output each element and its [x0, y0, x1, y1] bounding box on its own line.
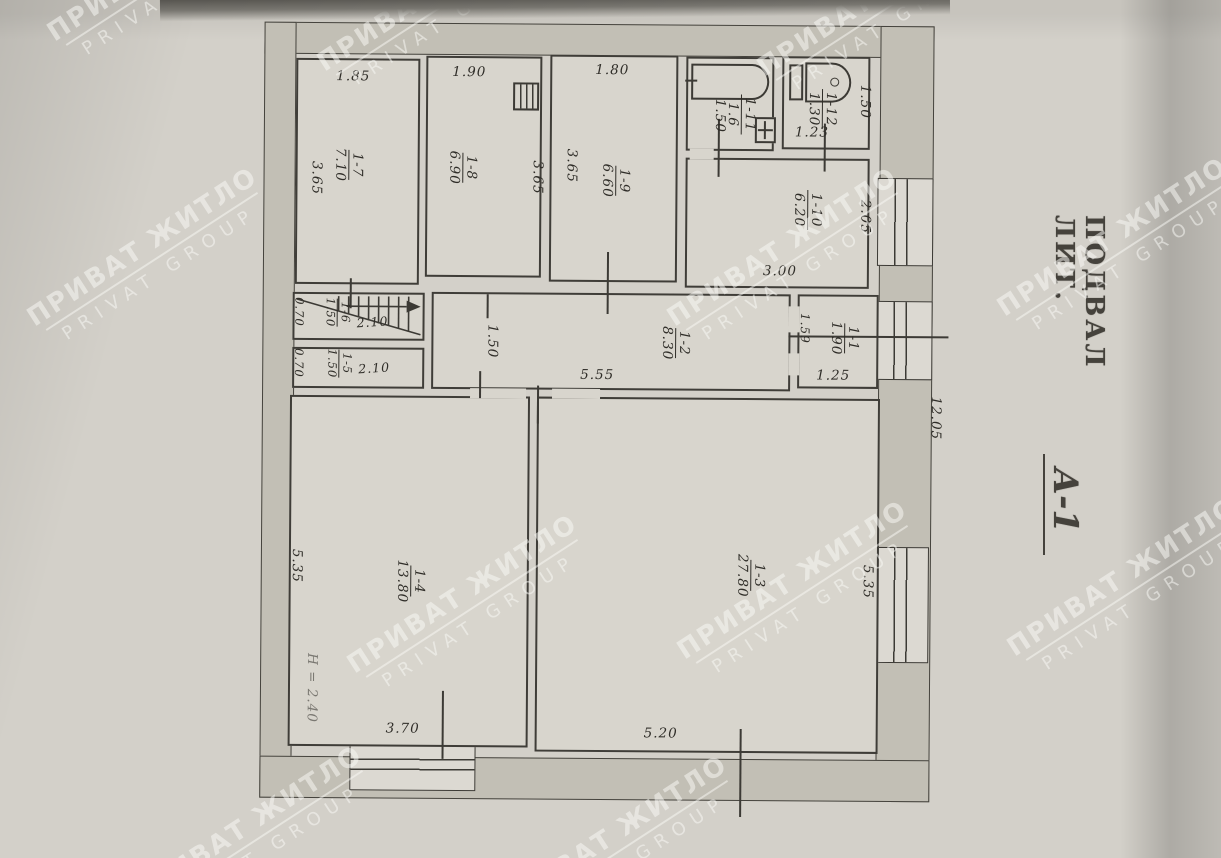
basement-stamp: ПОДВАЛ ЛИТ. А-1 [1049, 215, 1095, 555]
dim-1-8-right: 3.65 [529, 160, 545, 194]
leader-line [739, 729, 742, 817]
room-label-1-5: 1-51.50 [325, 349, 354, 379]
leader-line [479, 371, 481, 398]
dim-1-9-left: 3.65 [564, 149, 580, 183]
dim-1-12-bottom: 1.23 [795, 124, 829, 140]
door-bathroom [690, 149, 714, 160]
room-label-1-3: 1-327.80 [734, 554, 768, 598]
stamp-title: ПОДВАЛ ЛИТ. [1049, 215, 1109, 444]
room-1-3 [535, 397, 880, 754]
window-right-upper [877, 178, 934, 266]
scanned-floor-plan-page: 1-77.10 1-86.90 1-96.60 1-111.6 1-121.30… [0, 0, 1221, 858]
stove-icon [513, 82, 539, 110]
room-label-1-2: 1-28.30 [659, 326, 693, 360]
window-right-middle [876, 301, 933, 380]
room-label-1-10: 1-106.20 [791, 190, 825, 231]
dim-1-1-bottom: 1.25 [816, 368, 850, 384]
leader-line [607, 252, 609, 314]
outer-wall-top [264, 22, 934, 59]
dim-1-2-left: 1.50 [484, 324, 500, 358]
dim-1-7-top: 1.85 [336, 68, 370, 84]
dim-1-3-right: 5.35 [860, 565, 876, 599]
stamp-litera: А-1 [1043, 454, 1085, 555]
dim-1-8-top: 1.90 [452, 64, 486, 80]
room-label-1-7: 1-77.10 [332, 148, 366, 182]
room-label-1-11: 1-111.6 [724, 94, 758, 135]
room-label-1-8: 1-86.90 [446, 151, 480, 185]
room-label-1-9: 1-96.60 [599, 164, 633, 198]
dim-1-4-bottom: 3.70 [386, 721, 420, 737]
dim-1-7-left: 3.65 [308, 161, 324, 195]
toilet-tank-icon [789, 64, 803, 100]
dim-1-10-bottom: 3.00 [763, 263, 797, 279]
leader-line [537, 386, 539, 424]
room-label-1-4: 1-413.80 [394, 559, 428, 603]
dim-1-12-right: 1.50 [857, 85, 873, 119]
dim-1-4-left: 5.35 [289, 549, 305, 583]
dim-1-11-left: 1.50 [712, 99, 728, 133]
room-label-1-12: 1-121.30 [805, 89, 839, 130]
leader-line [487, 294, 489, 318]
dim-1-6-left: 0.70 [292, 297, 306, 327]
door-room-1-1-lower [788, 353, 799, 375]
window-right-lower [876, 547, 929, 663]
dim-1-6-bottom: 2.10 [356, 313, 389, 330]
dim-1-5-left: 0.70 [292, 348, 306, 378]
dim-1-10-right: 2.05 [857, 200, 873, 234]
toilet-flush-icon [830, 78, 839, 87]
room-label-1-6: 1-61.50 [323, 298, 352, 328]
stairs-direction-arrow [407, 301, 421, 313]
door-room-1-3 [552, 389, 600, 399]
dim-overall-height: 12.05 [928, 396, 944, 440]
dim-1-9-top: 1.80 [595, 62, 629, 78]
dim-1-3-bottom: 5.20 [644, 725, 678, 741]
dim-1-2-bottom: 5.55 [580, 367, 614, 383]
dim-1-1-left: 1.59 [798, 313, 812, 344]
dim-1-5-bottom: 2.10 [358, 359, 391, 376]
floor-plan: 1-77.10 1-86.90 1-96.60 1-111.6 1-121.30… [0, 0, 1221, 858]
bathtub-tap-icon [685, 80, 697, 82]
sink-cross-v [764, 121, 766, 139]
height-note-1-4: H = 2.40 [304, 653, 320, 723]
outer-wall-right [875, 26, 934, 802]
window-bottom [349, 744, 475, 791]
room-label-1-1: 1-11.90 [828, 321, 862, 355]
